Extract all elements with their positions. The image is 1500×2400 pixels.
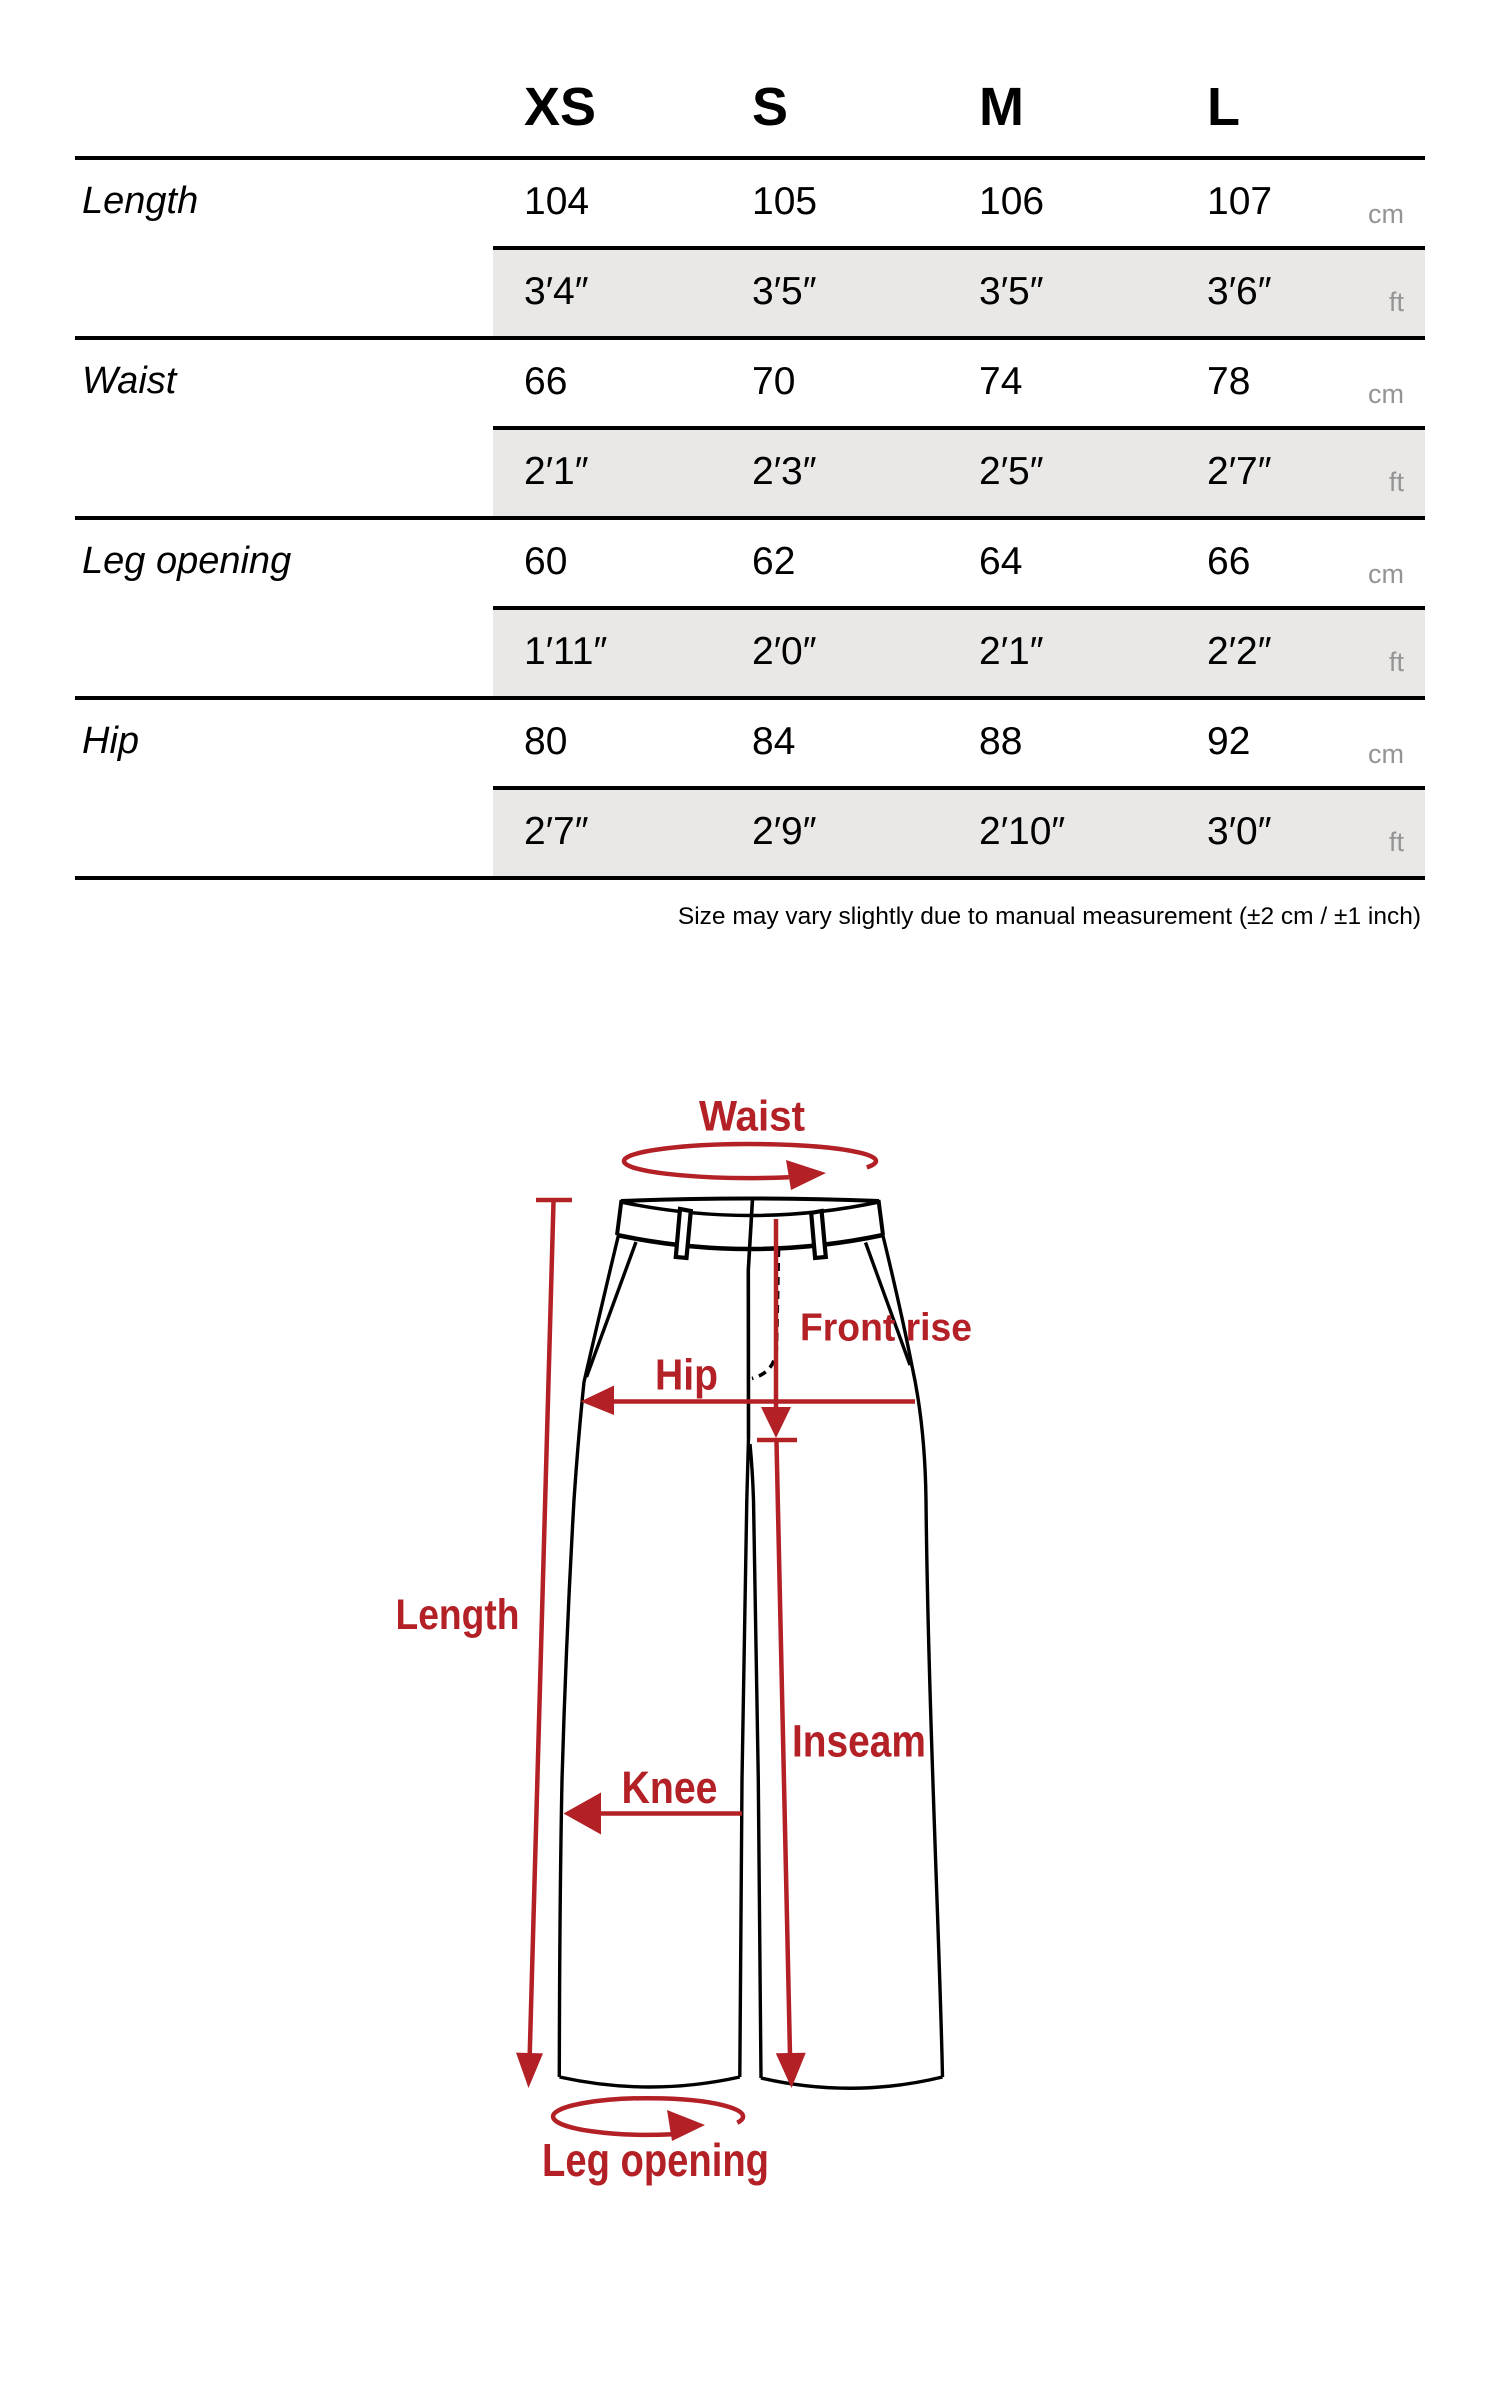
- svg-text:Inseam: Inseam: [792, 1716, 926, 1767]
- svg-text:Hip: Hip: [655, 1351, 718, 1400]
- svg-text:Leg opening: Leg opening: [542, 2134, 769, 2186]
- svg-text:Front rise: Front rise: [800, 1307, 972, 1350]
- svg-text:Length: Length: [396, 1592, 520, 1639]
- svg-text:Waist: Waist: [699, 1093, 805, 1141]
- svg-text:Knee: Knee: [622, 1762, 718, 1813]
